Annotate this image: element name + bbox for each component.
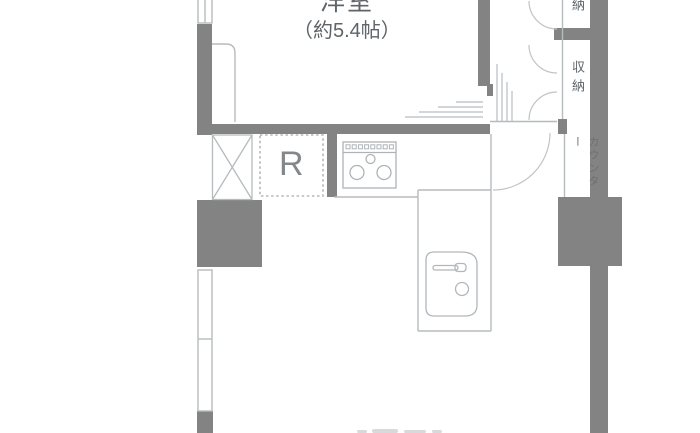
counter-label: カウンター [569, 136, 601, 198]
door-panel-outline [212, 44, 235, 122]
floor-plan-drawing [0, 0, 700, 433]
shaft-cross-icon [213, 135, 253, 200]
wall-doorway-nub [558, 119, 567, 134]
wall-kitchen-stub [327, 133, 337, 197]
wall-left-block [197, 200, 262, 267]
sink-icon [426, 252, 477, 316]
door-swing-arc-kitchen [493, 133, 550, 190]
room-label: 洋室 [312, 0, 382, 15]
wall-left-bottom [197, 411, 213, 433]
stove-icon [343, 142, 396, 188]
window-top-left [198, 0, 212, 23]
room-size-label: （約5.4帖） [293, 19, 397, 43]
door-swing-arc-closet-bottom [529, 92, 557, 120]
window-left [198, 270, 212, 411]
kitchen-counter-outline [334, 134, 491, 331]
door-swing-arc-closet-mid [529, 45, 557, 73]
floor-plan: 洋室 （約5.4帖） R 納 収納 カウンター [0, 0, 700, 433]
wall-room-divider [197, 124, 490, 134]
wall-corridor-nub [487, 84, 493, 96]
storage-lower-label: 収納 [568, 60, 587, 104]
refrigerator-label: R [279, 146, 304, 182]
storage-upper-label: 納 [568, 0, 587, 16]
wall-corridor-divider [478, 0, 490, 86]
walls [197, 0, 622, 433]
wall-left-upper [197, 24, 212, 135]
sliding-door-lines [405, 64, 512, 121]
cutoff-text-fragment [357, 429, 442, 433]
door-swing-arc-closet-top [529, 1, 557, 29]
wall-pillar [558, 197, 622, 266]
wall-closet-divider [554, 28, 590, 40]
